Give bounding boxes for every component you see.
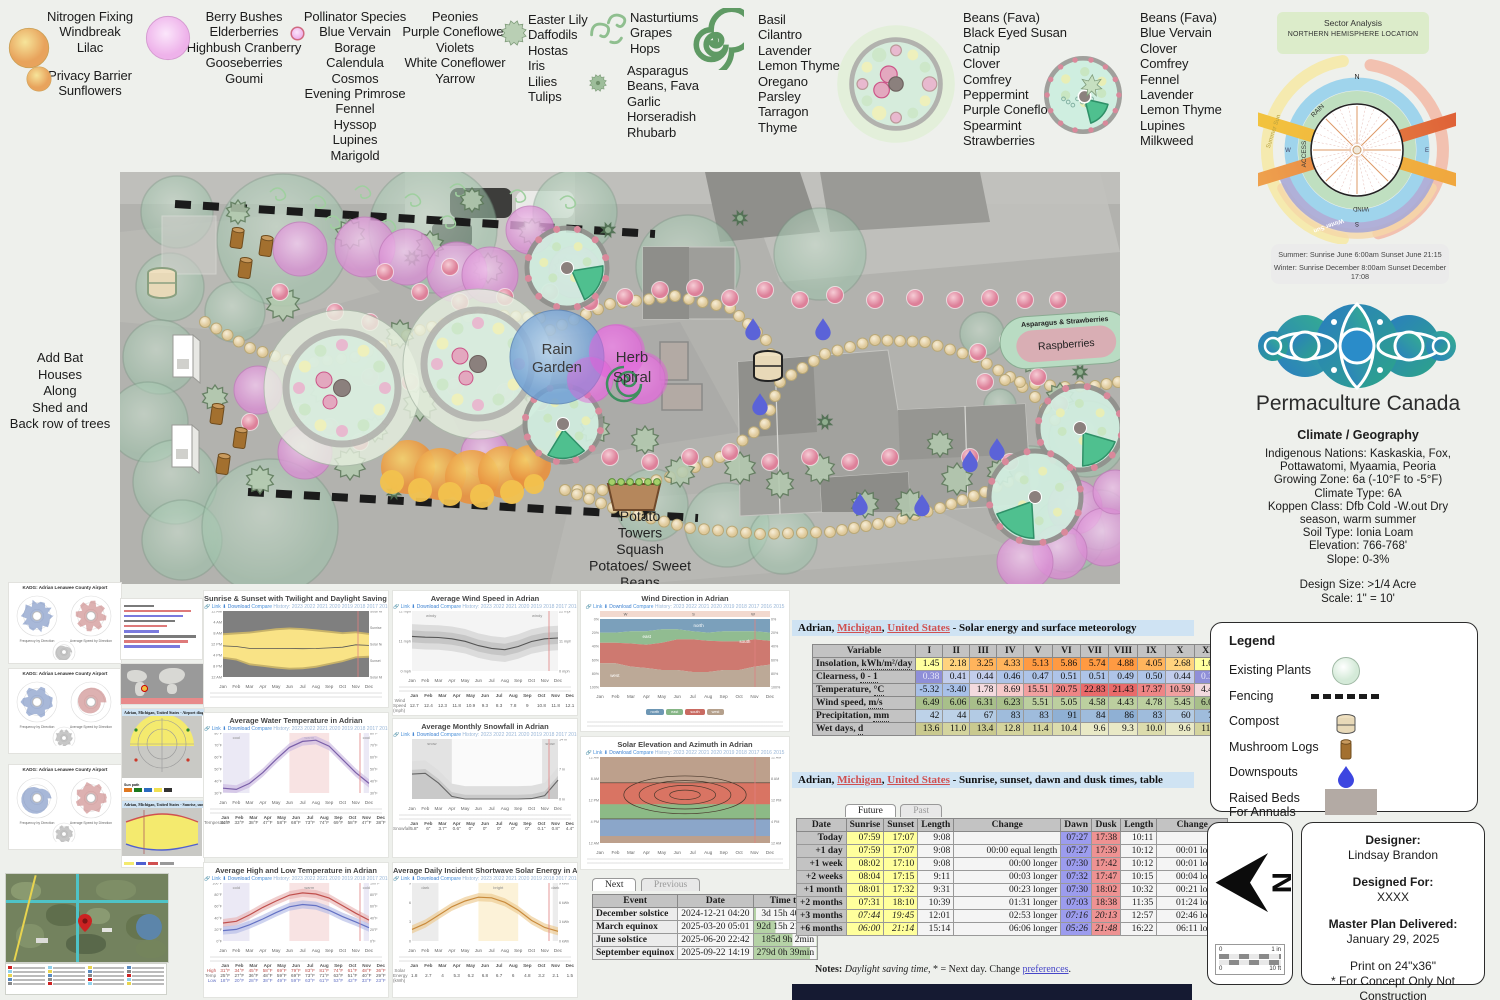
plant-icon-nasturtium [582,6,630,54]
svg-text:Potato: Potato [620,508,661,524]
compare-action[interactable]: Compare [251,876,272,882]
legend-label: Downspouts [1229,765,1298,779]
plant-icon-pollinator [290,26,305,41]
link-action[interactable]: 🔗 Link [586,750,603,756]
svg-text:Dec: Dec [766,694,775,699]
svg-text:11 mph: 11 mph [559,640,571,644]
wind-rose-pair: Frequency by Direction Average Speed by … [9,772,119,842]
tab-past[interactable]: Past [900,804,942,817]
svg-text:20°F: 20°F [214,928,222,932]
svg-text:May: May [461,678,470,683]
svg-text:Apr: Apr [643,850,651,855]
svg-text:4 AM: 4 AM [213,621,222,625]
svg-text:Jun: Jun [475,678,483,683]
chart-caption [210,690,382,698]
sector-title: Sector Analysis [1277,18,1429,28]
link-action[interactable]: 🔗 Link [393,604,410,610]
svg-text:east: east [643,634,652,639]
daylength-graph: Adrian, Michigan, United States - Sunris… [121,800,205,868]
svg-text:8 AM: 8 AM [771,777,779,781]
svg-text:Nov: Nov [541,948,550,953]
svg-text:Oct: Oct [736,694,744,699]
svg-text:Jun: Jun [286,948,294,953]
wind-rose-pair: Frequency by Direction Average Speed by … [9,590,119,660]
svg-text:80°F: 80°F [214,893,222,897]
chart-plot-water_temp: coolwarmcool30°F 30°F40°F 40°F50°F 50°F6… [210,733,382,805]
kadg-card-2: KADG: Adrian Lenawee County AirportFrequ… [8,668,122,754]
winter-sun-times: Winter: Sunrise December 8:00am Sunset D… [1271,263,1449,281]
tab-future[interactable]: Future [845,804,896,817]
svg-text:N: N [1354,74,1359,81]
svg-text:30°F: 30°F [214,792,222,796]
designer-box: Designer: Lindsay Brandon Designed For: … [1301,822,1485,985]
svg-text:Oct: Oct [528,806,536,811]
svg-text:cool: cool [363,735,370,740]
svg-text:Spiral: Spiral [613,369,651,386]
svg-text:Mar: Mar [627,694,635,699]
svg-text:Mar: Mar [246,800,254,805]
svg-text:40°F: 40°F [214,780,222,784]
svg-text:ACCESS: ACCESS [1301,140,1308,167]
plant-icon-easter [501,20,527,46]
svg-text:60°F: 60°F [214,905,222,909]
airport-info-panel [120,598,203,660]
svg-text:Jan: Jan [596,694,604,699]
compare-action[interactable]: Compare [251,726,272,732]
svg-text:Apr: Apr [259,684,267,689]
svg-text:80°F: 80°F [370,733,378,736]
svg-text:30°F: 30°F [370,792,378,796]
svg-text:Jul: Jul [489,948,495,953]
svg-text:Garden: Garden [532,359,582,376]
svg-text:cool: cool [233,735,240,740]
svg-text:9: 9 [409,883,411,886]
svg-text:Jan: Jan [408,806,416,811]
solar-energy-table: VariableIIIIIIIVVVIVIIVIIIIXXXIXIIInsola… [812,644,1249,736]
svg-text:40°F: 40°F [370,780,378,784]
north-arrow-icon: N [1209,831,1291,931]
svg-text:snow: snow [545,741,554,746]
chart-caption [399,812,571,820]
svg-text:0: 0 [409,940,411,944]
svg-text:22 mph: 22 mph [399,611,411,614]
svg-text:Sep: Sep [325,800,334,805]
svg-text:Sep: Sep [325,684,334,689]
svg-text:0 in: 0 in [559,798,565,802]
svg-text:Dec: Dec [365,800,374,805]
svg-text:20°F: 20°F [370,928,378,932]
svg-text:S: S [692,612,695,617]
preferences-link[interactable]: preferences [1022,964,1068,975]
chart-caption [399,684,571,692]
svg-text:Mar: Mar [435,678,443,683]
svg-text:May: May [461,948,470,953]
climate-heading: Climate / Geography [1253,428,1463,442]
svg-text:0°F: 0°F [216,940,222,944]
svg-text:Average Speed by Direction: Average Speed by Direction [70,821,112,825]
chart-data-table-water_temp: JanFebMarAprMayJunJulAugSepOctNovDecTemp… [204,815,388,825]
svg-text:Aug: Aug [704,694,713,699]
svg-text:12 AM: 12 AM [211,676,222,680]
svg-text:4 PM: 4 PM [591,820,599,824]
design-scale: Scale: 1" = 10' [1238,591,1478,608]
svg-text:Nov: Nov [541,678,550,683]
plant-icon-asparagus [589,74,607,92]
svg-text:9 kWh: 9 kWh [559,883,569,886]
climate-text: Indigenous Nations: Kaskaskia, Fox,Potta… [1238,448,1478,567]
svg-text:Squash: Squash [616,541,663,557]
svg-text:Oct: Oct [339,684,347,689]
tab-previous[interactable]: Previous [641,878,700,891]
svg-text:E: E [1425,148,1429,154]
svg-text:80°F: 80°F [214,733,222,736]
link-action[interactable]: 🔗 Link [393,876,410,882]
svg-text:Aug: Aug [312,684,321,689]
legend-title: Legend [1229,633,1477,648]
svg-text:Jun: Jun [674,694,682,699]
print-note: Print on 24"x36" [1302,959,1484,974]
svg-text:Frequency by Direction: Frequency by Direction [20,821,55,825]
svg-text:60%: 60% [771,658,779,662]
svg-text:50°F: 50°F [214,768,222,772]
svg-text:Apr: Apr [643,694,651,699]
chart-plot-snowfall: snowsnow0 in7 in14 inJanFebMarAprMayJunJ… [399,739,571,811]
svg-text:Mar: Mar [435,948,443,953]
svg-text:Mar: Mar [435,806,443,811]
svg-text:20%: 20% [592,631,600,635]
svg-text:Nov: Nov [352,800,361,805]
svg-text:12 AM: 12 AM [589,757,599,760]
aerial-locator-map [5,873,169,963]
svg-text:3 kWh: 3 kWh [559,920,569,924]
legend-label: Raised BedsFor Annuals [1229,791,1300,819]
link-action[interactable]: 🔗 Link [204,604,221,610]
compare-action[interactable]: Compare [633,750,654,756]
permaculture-master-plan-poster: Nitrogen FixingWindbreakLilac Privacy Ba… [0,0,1500,1000]
link-action[interactable]: 🔗 Link [393,732,410,738]
svg-text:Dec: Dec [365,684,374,689]
svg-text:8 AM: 8 AM [591,777,599,781]
svg-text:May: May [272,800,281,805]
sun-times-box: Summer: Sunrise June 6:00am Sunset June … [1271,244,1449,284]
svg-text:Aug: Aug [704,850,713,855]
chart-plot-solar_elevation: 12 AM 12 AM8 AM 8 AM12 PM 12 PM4 PM 4 PM… [587,757,783,855]
svg-text:May: May [657,850,666,855]
link-action[interactable]: 🔗 Link [586,604,603,610]
plant-icon-privacy [26,66,52,92]
plant-group-guildS: Beans (Fava)Blue VervainCloverComfreyFen… [1140,10,1230,149]
svg-text:Nov: Nov [541,806,550,811]
svg-text:windy: windy [426,613,436,618]
plant-icon-basil [682,8,744,70]
svg-text:12 AM: 12 AM [211,611,222,614]
svg-text:Jul: Jul [300,684,306,689]
delivered-date: January 29, 2025 [1302,932,1484,947]
chart-plot-high_low_temp: coldwarmcold0°F 0°F20°F 20°F40°F 40°F60°… [210,883,382,953]
legend-label: Compost [1229,714,1279,728]
svg-text:Feb: Feb [421,678,429,683]
chart-data-table-solar_energy: JanFebMarAprMayJunJulAugSepOctNovDecSola… [393,963,577,983]
svg-text:Dec: Dec [554,806,563,811]
north-arrow-box: N 01 in 010 ft [1207,822,1293,985]
legend-panel: Legend Existing PlantsFencingCompostMush… [1210,622,1478,812]
compare-action[interactable]: Compare [440,732,461,738]
compare-action[interactable]: Compare [440,604,461,610]
svg-text:60%: 60% [592,658,600,662]
svg-text:Frequency by Direction: Frequency by Direction [20,639,55,643]
svg-text:70°F: 70°F [214,744,222,748]
svg-text:Mar: Mar [627,850,635,855]
download-action[interactable]: ⬇ Download [222,876,250,882]
chart-plot-wind_speed: 0 mph 0 mph11 mph 11 mph22 mph 22 mphwin… [399,611,571,683]
download-action[interactable]: ⬇ Download [411,876,439,882]
link-action[interactable]: 🔗 Link [204,726,221,732]
chart-data-table-snowfall: JanFebMarAprMayJunJulAugSepOctNovDecSnow… [393,821,577,831]
svg-text:7 in: 7 in [559,768,565,772]
svg-text:Jun: Jun [475,948,483,953]
raised-bed-icon [1311,787,1381,817]
svg-text:Dec: Dec [554,678,563,683]
existing-plant-icon [1311,655,1381,685]
svg-text:dark: dark [421,885,429,890]
download-action[interactable]: ⬇ Download [411,604,439,610]
sector-analysis-box: Sector Analysis NORTHERN HEMISPHERE LOCA… [1277,12,1429,54]
svg-text:May: May [461,806,470,811]
svg-text:40°F: 40°F [370,916,378,920]
chart-data-table-high_low_temp: JanFebMarAprMayJunJulAugSepOctNovDecHigh… [204,963,388,983]
svg-text:Apr: Apr [259,800,267,805]
svg-text:Rain: Rain [542,341,573,358]
svg-text:0 mph: 0 mph [400,670,411,674]
disclaimer: * For Concept Only Not Construction [1302,974,1484,1000]
svg-text:12 PM: 12 PM [589,799,599,803]
download-action[interactable]: ⬇ Download [604,750,632,756]
designer-name: Lindsay Brandon [1302,848,1484,863]
loc-state-link[interactable]: Michigan [837,622,882,634]
designed-for-name: XXXX [1302,890,1484,905]
svg-text:12 AM: 12 AM [771,842,781,846]
svg-text:cold: cold [233,885,240,890]
kadg-card-3: KADG: Adrian Lenawee County AirportFrequ… [8,764,122,850]
plant-icon-guildL [836,24,956,144]
designer-label: Designer: [1302,833,1484,848]
svg-text:W: W [751,612,755,617]
svg-text:Jan: Jan [596,850,604,855]
chart-plot-wind_direction: WSW0% 0%20% 20%40% 40%60% 60%80% 80%100%… [587,611,783,699]
svg-text:50°F: 50°F [370,768,378,772]
chart-plot-sun_times: 12 AM4 AM8 AM12 PM4 PM8 PM12 AMSolar Mid… [210,611,382,689]
svg-text:12 AM: 12 AM [589,842,599,846]
svg-text:12 AM: 12 AM [771,757,781,760]
svg-text:Oct: Oct [736,850,744,855]
svg-text:70°F: 70°F [370,744,378,748]
svg-text:40%: 40% [592,645,600,649]
svg-text:3: 3 [409,920,411,924]
chart-caption [587,719,783,727]
svg-text:Jul: Jul [690,694,696,699]
svg-text:Jul: Jul [489,678,495,683]
svg-text:S: S [1355,220,1359,226]
chart-caption [210,806,382,814]
svg-text:Nov: Nov [750,850,759,855]
svg-text:6 kWh: 6 kWh [559,901,569,905]
plant-group-peonies: PeoniesPurple ConeflowerVioletsWhite Con… [396,9,514,86]
svg-text:Sep: Sep [514,678,523,683]
legend-item-mushroom-log: Mushroom Logs [1229,736,1459,762]
svg-text:bright: bright [493,885,504,890]
svg-text:Potatoes/ Sweet: Potatoes/ Sweet [589,558,691,574]
svg-text:Sep: Sep [514,806,523,811]
svg-text:60°F: 60°F [370,756,378,760]
chart-card-sun_times: Sunrise & Sunset with Twilight and Dayli… [203,590,389,708]
svg-text:windy: windy [532,613,542,618]
world-map-panel [120,663,205,705]
svg-text:Apr: Apr [259,948,267,953]
svg-text:Jun: Jun [674,850,682,855]
svg-text:12 PM: 12 PM [771,799,781,803]
link-action[interactable]: 🔗 Link [204,876,221,882]
svg-text:May: May [657,694,666,699]
svg-text:snow: snow [427,741,436,746]
svg-text:Herb: Herb [616,349,649,366]
summer-sun-times: Summer: Sunrise June 6:00am Sunset June … [1271,250,1449,259]
plant-icon-berry [145,15,191,61]
svg-text:Jun: Jun [286,684,294,689]
svg-text:100%: 100% [590,686,600,690]
compare-action[interactable]: Compare [251,604,272,610]
svg-text:N: N [1266,872,1291,893]
svg-text:Solar Noon: Solar Noon [370,643,382,647]
sun-table-notes: Notes: Daylight saving time, * = Next da… [815,964,1071,975]
legend-label: Fencing [1229,689,1273,703]
loc-country-link[interactable]: United States [887,622,950,634]
svg-text:Dec: Dec [554,948,563,953]
kadg-card-1: KADG: Adrian Lenawee County AirportFrequ… [8,582,122,664]
svg-text:WIND: WIND [1352,205,1369,211]
legend-label: Mushroom Logs [1229,740,1319,754]
download-action[interactable]: ⬇ Download [411,732,439,738]
svg-text:Frequency by Direction: Frequency by Direction [20,725,55,729]
legend-label: Existing Plants [1229,663,1311,677]
svg-text:Jan: Jan [219,800,227,805]
svg-text:20%: 20% [771,631,779,635]
svg-text:11 mph: 11 mph [399,640,411,644]
loc-country-link2[interactable]: United States [887,774,950,786]
chart-plot-solar_energy: darkbrightdark0 0 kWh3 3 kWh6 6 kWh9 9 k… [399,883,571,953]
solstice-equinox-panel: Next Previous EventDateTime toDecember s… [592,874,818,960]
svg-text:Nov: Nov [750,694,759,699]
chart-card-water_temp: Average Water Temperature in Adrian 🔗 Li… [203,712,389,858]
footer-strip [792,984,1192,1000]
aerial-map-legend [5,963,167,995]
site-plan-map[interactable]: Asparagus & Strawberries RaspberriesRain… [120,172,1120,584]
svg-text:Aug: Aug [501,678,510,683]
svg-text:4 PM: 4 PM [213,654,222,658]
svg-text:Oct: Oct [339,800,347,805]
svg-text:Beans: Beans [620,574,660,584]
svg-text:Aug: Aug [312,948,321,953]
legend-item-compost: Compost [1229,710,1459,736]
svg-text:Apr: Apr [448,806,456,811]
svg-text:Feb: Feb [612,694,620,699]
svg-text:Feb: Feb [232,948,240,953]
svg-text:W: W [624,612,628,617]
loc-state-link2[interactable]: Michigan [837,774,882,786]
svg-text:22 mph: 22 mph [559,611,571,614]
svg-text:0 mph: 0 mph [559,670,570,674]
chart-card-wind_speed: Average Wind Speed in Adrian 🔗 Link ⬇ Do… [392,590,578,716]
svg-text:0 kWh: 0 kWh [559,940,569,944]
svg-text:Jan: Jan [408,678,416,683]
solar-table-title: Adrian, Michigan, United States - Solar … [792,620,1194,636]
svg-text:0%: 0% [594,618,600,622]
svg-text:north: north [694,623,705,628]
chart-card-high_low_temp: Average High and Low Temperature in Adri… [203,862,389,998]
svg-text:100°F: 100°F [370,883,380,886]
compare-action[interactable]: Compare [633,604,654,610]
svg-text:4 PM: 4 PM [771,820,779,824]
download-action[interactable]: ⬇ Download [604,604,632,610]
chart-caption [399,954,571,962]
svg-text:Oct: Oct [528,678,536,683]
svg-text:south: south [739,639,751,644]
legend-item-downspout: Downspouts [1229,761,1459,787]
svg-text:100%: 100% [771,686,781,690]
svg-text:Nov: Nov [352,948,361,953]
sun-table-title: Adrian, Michigan, United States - Sunris… [792,772,1194,788]
svg-text:Jul: Jul [300,800,306,805]
plant-group-privacy: Privacy BarrierSunflowers [40,68,140,99]
svg-text:Aug: Aug [501,806,510,811]
svg-text:6: 6 [409,901,411,905]
designed-for-label: Designed For: [1302,875,1484,890]
svg-text:60°F: 60°F [370,905,378,909]
svg-text:Jul: Jul [489,806,495,811]
svg-text:Feb: Feb [232,684,240,689]
sunrise-sunset-table: DateSunriseSunsetLengthChangeDawnDuskLen… [796,818,1228,936]
svg-text:May: May [272,684,281,689]
svg-text:cold: cold [363,885,370,890]
svg-text:Nov: Nov [352,684,361,689]
svg-text:80°F: 80°F [370,893,378,897]
svg-text:Jan: Jan [408,948,416,953]
download-action[interactable]: ⬇ Download [222,604,250,610]
svg-text:Towers: Towers [618,525,662,541]
legend-item-raised-bed: Raised BedsFor Annuals [1229,787,1459,813]
svg-text:Feb: Feb [232,800,240,805]
svg-text:May: May [272,948,281,953]
svg-text:12 PM: 12 PM [211,643,222,647]
svg-text:80%: 80% [771,672,779,676]
svg-text:40°F: 40°F [214,916,222,920]
svg-text:Oct: Oct [528,948,536,953]
svg-text:Feb: Feb [612,850,620,855]
download-action[interactable]: ⬇ Download [222,726,250,732]
svg-text:Apr: Apr [448,678,456,683]
compare-action[interactable]: Compare [440,876,461,882]
svg-text:80%: 80% [592,672,600,676]
tab-next[interactable]: Next [592,878,636,891]
svg-text:Sep: Sep [514,948,523,953]
svg-text:Average Speed by Direction: Average Speed by Direction [70,725,112,729]
svg-text:Mar: Mar [246,948,254,953]
svg-text:14 in: 14 in [559,739,567,742]
permaculture-canada-logo [1258,302,1456,390]
plant-group-nitrogen: Nitrogen FixingWindbreakLilac [40,9,140,55]
svg-text:Oct: Oct [339,948,347,953]
svg-text:Jul: Jul [300,948,306,953]
sun-table-tabs: Future Past [845,800,942,818]
